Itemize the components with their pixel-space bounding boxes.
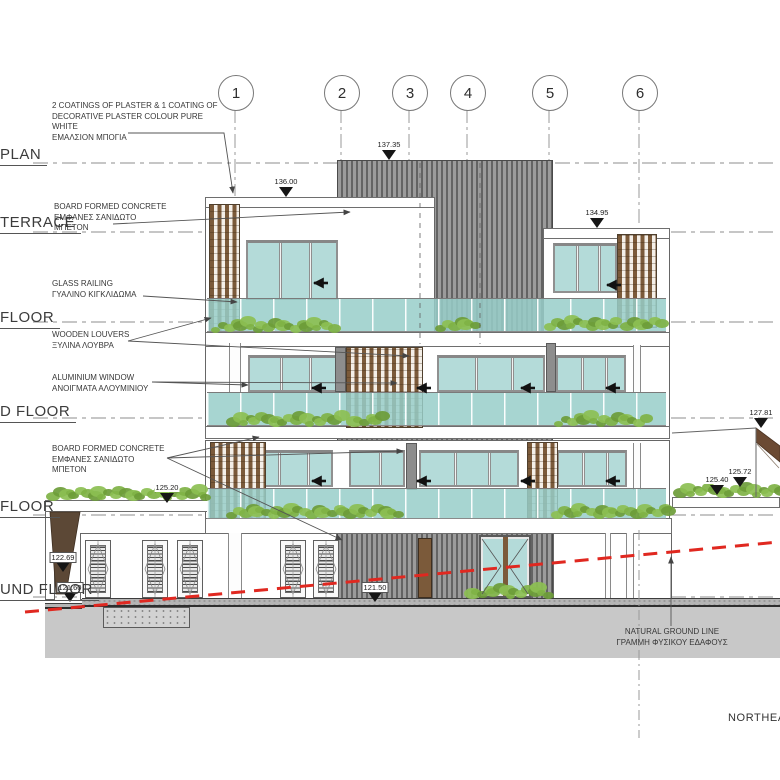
annotation-line: ΕΜΦΑΝΕΣ ΣΑΝΙΔΩΤΟ (52, 455, 164, 466)
level-label-floor: FLOOR (0, 498, 60, 518)
elevation-marker-value: 134.95 (585, 208, 610, 217)
grid-bubble-4: 4 (450, 75, 486, 111)
annotation-line: NATURAL GROUND LINE (616, 627, 727, 638)
elevation-marker-value: 137.35 (377, 140, 402, 149)
grid-bubble-2: 2 (324, 75, 360, 111)
level-label-d-floor: D FLOOR (0, 403, 76, 423)
annotation-line: ΕΜΑΛΣΙΟΝ ΜΠΟΓΙΑ (52, 133, 218, 144)
annotation-plaster-coatings: 2 COATINGS OF PLASTER & 1 COATING OFDECO… (52, 101, 218, 143)
grid-bubble-6: 6 (622, 75, 658, 111)
annotation-line: ΜΠΕΤΟΝ (54, 223, 166, 234)
annotation-line: WHITE (52, 122, 218, 133)
annotation-line: ΓΡΑΜΜΗ ΦΥΣΙΚΟΥ ΕΔΑΦΟΥΣ (616, 638, 727, 649)
grid-bubble-label: 1 (232, 85, 240, 102)
annotation-line: BOARD FORMED CONCRETE (54, 202, 166, 213)
elevation-marker-value: 125.40 (705, 475, 730, 484)
annotation-line: WOODEN LOUVERS (52, 330, 129, 341)
annotation-line: ΕΜΦΑΝΕΣ ΣΑΝΙΔΩΤΟ (54, 213, 166, 224)
text-layer: NORTHEAST 137.35136.00134.95127.81125.72… (0, 0, 780, 780)
annotation-line: DECORATIVE PLASTER COLOUR PURE (52, 112, 218, 123)
annotation-wooden-louvers: WOODEN LOUVERSΞΥΛΙΝΑ ΛΟΥΒΡΑ (52, 330, 129, 351)
annotation-aluminium-window: ALUMINIUM WINDOWΑΝΟΙΓΜΑΤΑ ΑΛΟΥΜΙΝΙΟΥ (52, 373, 148, 394)
grid-bubble-label: 4 (464, 85, 472, 102)
grid-bubble-1: 1 (218, 75, 254, 111)
grid-bubble-3: 3 (392, 75, 428, 111)
annotation-natural-ground-line: NATURAL GROUND LINEΓΡΑΜΜΗ ΦΥΣΙΚΟΥ ΕΔΑΦΟΥ… (616, 627, 727, 648)
level-label-floor: FLOOR (0, 309, 60, 329)
annotation-board-formed-concrete-top: BOARD FORMED CONCRETEΕΜΦΑΝΕΣ ΣΑΝΙΔΩΤΟΜΠΕ… (54, 202, 166, 234)
grid-bubble-label: 6 (636, 85, 644, 102)
annotation-line: ALUMINIUM WINDOW (52, 373, 148, 384)
annotation-line: BOARD FORMED CONCRETE (52, 444, 164, 455)
grid-bubble-label: 3 (406, 85, 414, 102)
elevation-drawing-canvas: NORTHEAST 137.35136.00134.95127.81125.72… (0, 0, 780, 780)
grid-bubble-label: 5 (546, 85, 554, 102)
grid-bubble-label: 2 (338, 85, 346, 102)
annotation-glass-railing: GLASS RAILINGΓΥΑΛΙΝΟ ΚΙΓΚΛΙΔΩΜΑ (52, 279, 136, 300)
elevation-direction-label: NORTHEAST (728, 712, 780, 724)
annotation-line: ΞΥΛΙΝΑ ΛΟΥΒΡΑ (52, 341, 129, 352)
elevation-marker-value: 136.00 (274, 177, 299, 186)
level-label-und-floor: UND FLOOR (0, 581, 99, 601)
annotation-line: ΜΠΕΤΟΝ (52, 465, 164, 476)
grid-bubble-5: 5 (532, 75, 568, 111)
level-label-plan: PLAN (0, 146, 47, 166)
annotation-line: GLASS RAILING (52, 279, 136, 290)
elevation-marker-value: 122.69 (50, 552, 77, 563)
annotation-line: ΑΝΟΙΓΜΑΤΑ ΑΛΟΥΜΙΝΙΟΥ (52, 384, 148, 395)
elevation-marker-value: 125.20 (155, 483, 180, 492)
elevation-marker-value: 125.72 (728, 467, 753, 476)
annotation-line: 2 COATINGS OF PLASTER & 1 COATING OF (52, 101, 218, 112)
annotation-board-formed-concrete-bottom: BOARD FORMED CONCRETEΕΜΦΑΝΕΣ ΣΑΝΙΔΩΤΟΜΠΕ… (52, 444, 164, 476)
elevation-marker-value: 121.50 (362, 582, 389, 593)
elevation-marker-value: 127.81 (749, 408, 774, 417)
annotation-line: ΓΥΑΛΙΝΟ ΚΙΓΚΛΙΔΩΜΑ (52, 290, 136, 301)
